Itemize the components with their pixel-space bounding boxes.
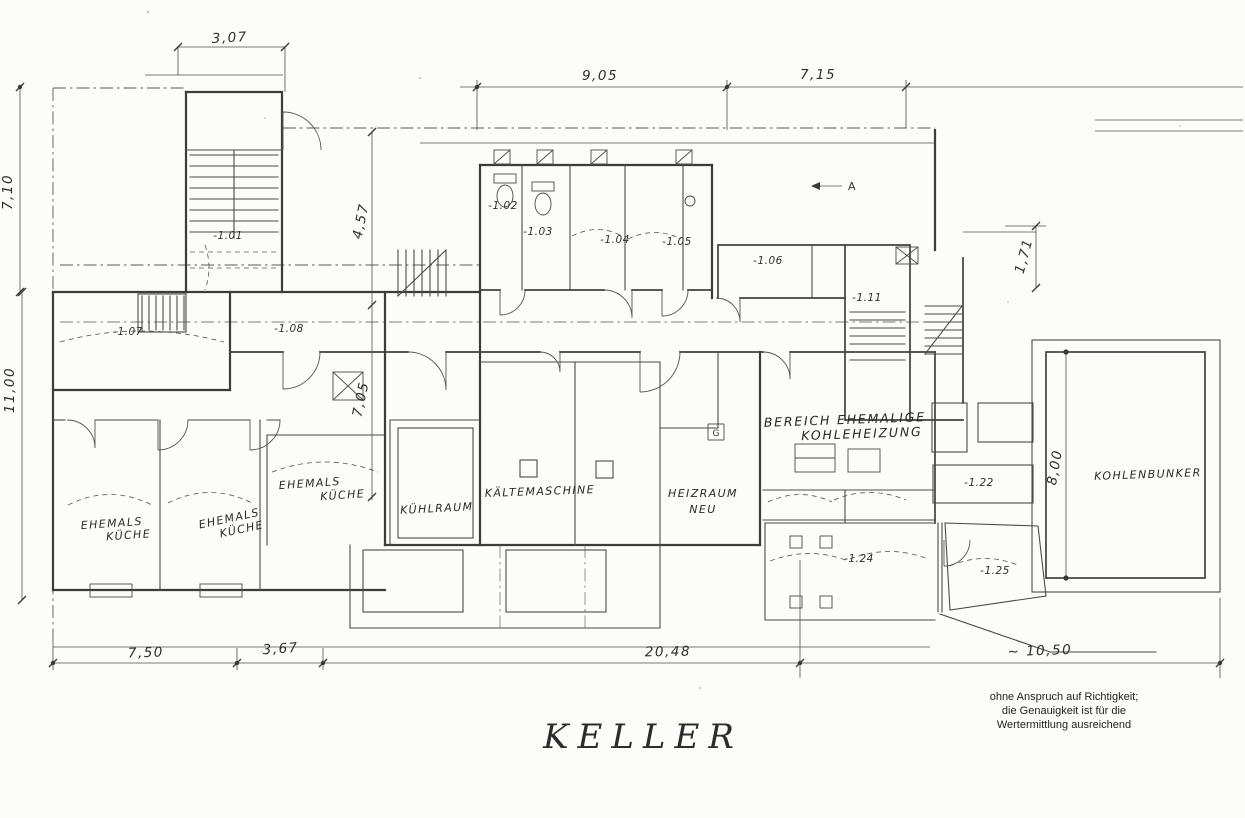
room-number: -1.02 xyxy=(488,200,518,212)
dim-label: 11,00 xyxy=(2,367,18,413)
staircase-mid xyxy=(398,250,446,296)
room-name-kuehlraum: KÜHLRAUM xyxy=(400,500,474,517)
disclaimer-note: ohne Anspruch auf Richtigkeit; die Genau… xyxy=(990,691,1139,731)
room-name-kaeltemaschine: KÄLTEMASCHINE xyxy=(484,483,595,500)
disclaimer-line: Wertermittlung ausreichend xyxy=(997,719,1131,731)
fixtures: G xyxy=(90,150,918,608)
dim-label: 8,00 xyxy=(1044,448,1066,486)
dim-right-small: 1,71 xyxy=(1005,222,1046,292)
dim-label: 7,05 xyxy=(350,380,373,419)
room-name-kueche2: EHEMALS KÜCHE xyxy=(198,505,266,544)
column-footings xyxy=(790,536,832,608)
room-number: -1.11 xyxy=(852,292,882,304)
dim-label: 7,10 xyxy=(0,174,16,210)
dim-label: ~ 10,50 xyxy=(1007,642,1072,660)
section-marker-label: A xyxy=(848,180,856,193)
boiler-bases xyxy=(795,444,880,472)
plan-title: KELLER xyxy=(542,717,743,757)
pillars xyxy=(520,460,613,478)
dim-bunker-height: 8,00 xyxy=(1044,349,1069,580)
svg-text:NEU: NEU xyxy=(689,503,716,516)
section-marker-a: A xyxy=(811,180,856,193)
room-name-bereich: BEREICH EHEMALIGE KOHLEHEIZUNG xyxy=(764,409,927,443)
floor-plan-sheet: G xyxy=(0,0,1245,818)
floor-plan-drawing: G xyxy=(0,0,1245,818)
room-name-kueche3: EHEMALS KÜCHE xyxy=(278,473,365,506)
room-name-kueche1: EHEMALS KÜCHE xyxy=(80,514,151,545)
outer-walls xyxy=(53,92,963,590)
drain-icon xyxy=(685,196,695,206)
room-number: -1.04 xyxy=(600,234,630,246)
gas-meter-box: G xyxy=(708,424,724,440)
room-name-kohlenbunker: KOHLENBUNKER xyxy=(1094,466,1202,483)
dim-label: 1,71 xyxy=(1012,236,1037,275)
svg-text:KOHLEHEIZUNG: KOHLEHEIZUNG xyxy=(801,424,923,443)
toilet-icon xyxy=(532,182,554,215)
room-name-heizraum: HEIZRAUM NEU xyxy=(668,487,738,516)
vault-arcs xyxy=(60,230,1020,567)
staircase-right-small xyxy=(925,306,962,354)
boundary-lines xyxy=(53,88,1243,640)
room-number: -1.03 xyxy=(523,226,553,238)
dim-label: 9,05 xyxy=(582,68,618,84)
room-number: -1.01 xyxy=(213,230,243,242)
dim-label: 3,67 xyxy=(262,640,299,658)
shaft-cross-icon xyxy=(896,247,918,264)
dim-label: 7,50 xyxy=(128,644,165,661)
dim-left-lower: 11,00 xyxy=(2,288,26,604)
room-number: -1.06 xyxy=(753,255,783,267)
scan-artifacts xyxy=(147,11,1181,689)
dim-wing-width: 3,07 xyxy=(145,29,289,92)
room-names: EHEMALS KÜCHE EHEMALS KÜCHE EHEMALS KÜCH… xyxy=(80,409,1202,545)
disclaimer-line: ohne Anspruch auf Richtigkeit; xyxy=(990,691,1139,703)
interior-walls xyxy=(53,150,1220,652)
dim-top: 9,05 7,15 xyxy=(460,67,1243,130)
dim-label: 20,48 xyxy=(645,644,691,661)
room-number: -1.05 xyxy=(662,236,692,248)
dim-left-upper: 7,10 xyxy=(0,83,24,296)
room-number: -1.22 xyxy=(964,477,994,489)
dim-label: 4,57 xyxy=(350,202,373,241)
svg-text:HEIZRAUM: HEIZRAUM xyxy=(668,487,738,500)
disclaimer-line: die Genauigkeit ist für die xyxy=(1002,705,1126,717)
dim-label: 7,15 xyxy=(800,67,836,83)
staircase-room-107 xyxy=(142,296,184,330)
room-number: -1.24 xyxy=(844,553,874,565)
svg-text:KÜCHE: KÜCHE xyxy=(320,487,366,503)
vent-shafts xyxy=(494,150,692,164)
room-number: -1.25 xyxy=(980,565,1010,577)
gas-meter-label: G xyxy=(713,429,720,439)
dim-label: 3,07 xyxy=(211,29,248,47)
room-number: -1.07 xyxy=(113,326,143,338)
room-number: -1.08 xyxy=(274,323,304,335)
svg-text:KÜCHE: KÜCHE xyxy=(106,527,152,543)
dim-mid-vertical: 4,57 7,05 xyxy=(350,128,376,501)
